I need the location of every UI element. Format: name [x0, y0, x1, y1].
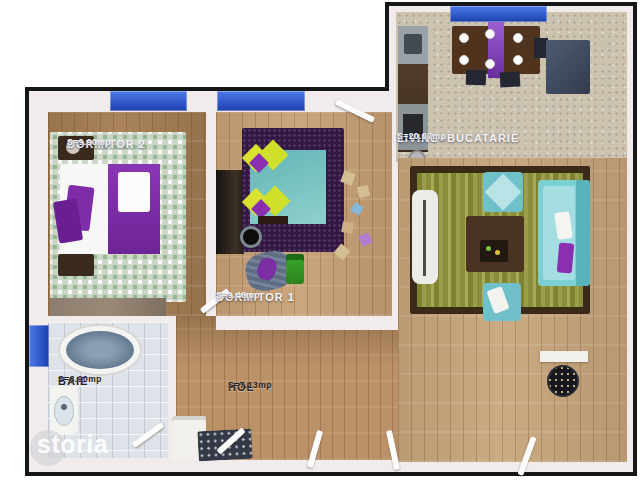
fridge	[546, 40, 590, 94]
wardrobe	[216, 170, 244, 254]
toy-car	[286, 254, 304, 284]
window	[29, 325, 49, 367]
floor-plan: DORMITOR 2 S=9.90mp DORMITOR 1 S=9.46mp …	[0, 0, 640, 480]
wall-dormitor1-hol	[216, 316, 398, 330]
room-area: S=7.13mp	[228, 380, 272, 391]
floor-speaker	[240, 226, 262, 248]
plate	[513, 55, 523, 65]
plate	[513, 33, 523, 43]
room-area: S=9.46mp	[216, 290, 260, 301]
toilet-seat	[54, 396, 74, 426]
dresser	[50, 298, 166, 316]
toilet-drain	[61, 404, 67, 410]
tray-item	[486, 246, 491, 251]
room-area: S=9.90mp	[67, 137, 111, 148]
sink-basin	[404, 34, 422, 54]
sofa-backrest	[576, 180, 590, 286]
toy-block	[341, 221, 354, 234]
watermark-brand: storia	[37, 430, 108, 459]
plate	[459, 55, 469, 65]
chair	[500, 71, 521, 87]
plate	[485, 29, 495, 39]
room-area: S=3.90mp	[58, 374, 102, 385]
window	[217, 91, 305, 111]
coffee-tray	[480, 240, 508, 262]
window	[110, 91, 187, 111]
sofa-pillow	[557, 242, 575, 273]
tray-item	[495, 250, 500, 255]
chair	[466, 70, 487, 86]
bathtub-water	[66, 331, 134, 369]
nightstand	[58, 254, 94, 276]
plant-pot	[547, 365, 579, 397]
bed-footboard	[258, 216, 288, 224]
tv	[423, 200, 426, 276]
plate	[459, 33, 469, 43]
plate	[485, 59, 495, 69]
bed-pillow	[118, 172, 150, 212]
room-area: S=20.07mp	[397, 131, 446, 142]
console-shelf	[540, 351, 588, 362]
window	[450, 6, 547, 22]
